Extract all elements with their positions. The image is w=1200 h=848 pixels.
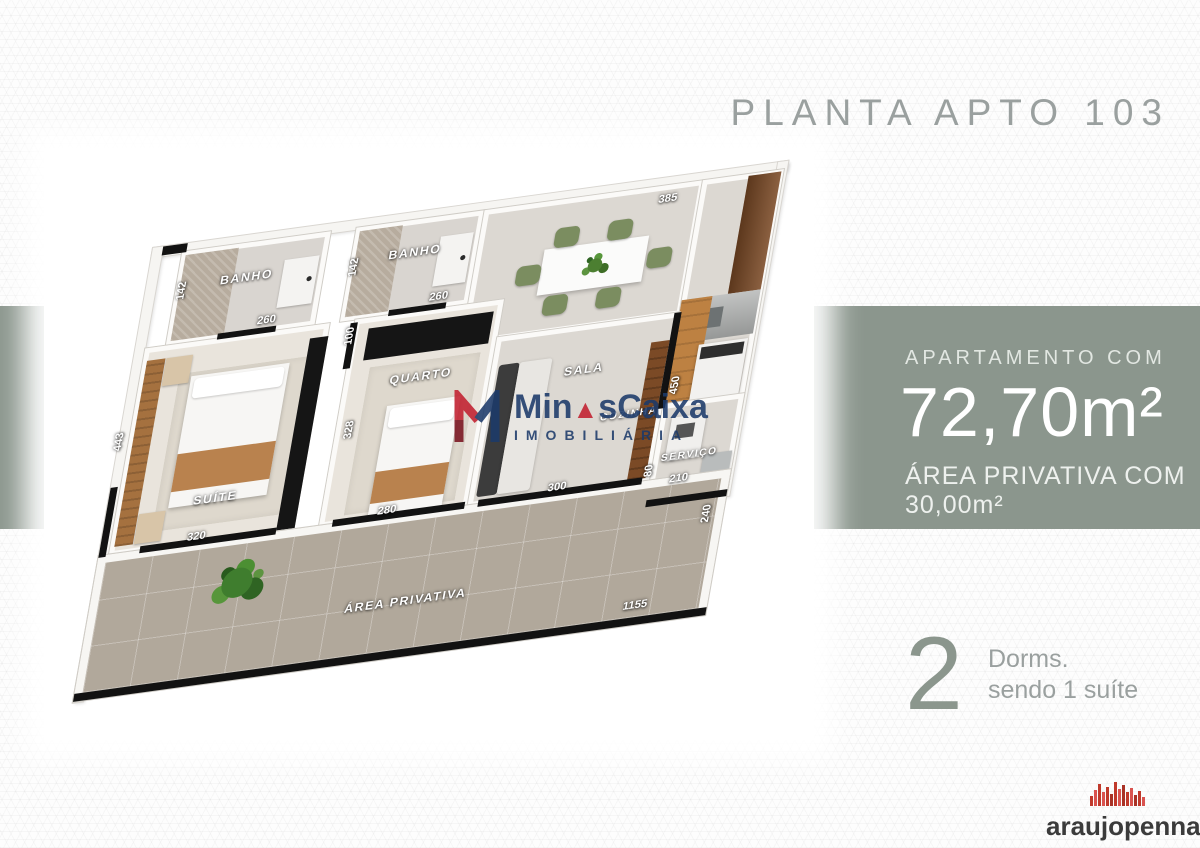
- bed-throw: [370, 462, 449, 504]
- bath-sink: [432, 232, 474, 286]
- private-area-text: ÁREA PRIVATIVA COM 30,00m²: [905, 462, 1200, 520]
- watermark-brand: Min▲sCaixa: [514, 390, 708, 424]
- bed-throw: [171, 441, 276, 492]
- dining-chair: [594, 286, 622, 309]
- brand-part: Min: [514, 388, 573, 426]
- bed-pillows: [387, 399, 456, 428]
- bath-sink: [276, 255, 319, 308]
- dining-chair: [645, 246, 673, 269]
- dorms-sublabel: sendo 1 suíte: [988, 676, 1138, 705]
- faucet: [460, 255, 466, 261]
- apartment-heading: APARTAMENTO COM: [905, 347, 1166, 370]
- stove-top: [699, 341, 744, 359]
- nightstand: [134, 511, 166, 545]
- dim-servico-depth: 80: [642, 464, 656, 478]
- araujopenna-text: araujopenna: [1046, 813, 1200, 839]
- brand-part: sCaixa: [598, 388, 708, 426]
- brand-triangle: ▲: [573, 394, 599, 424]
- minascaixa-m-icon: [452, 390, 502, 446]
- watermark: Min▲sCaixa IMOBILIÁRIA: [452, 390, 708, 446]
- skyline-icon: [1088, 780, 1158, 806]
- faucet: [306, 276, 312, 282]
- page-title: PLANTA APTO 103: [731, 92, 1170, 134]
- araujopenna-logo: araujopenna: [1046, 780, 1200, 839]
- watermark-subtitle: IMOBILIÁRIA: [514, 427, 708, 443]
- dining-chair: [541, 293, 569, 316]
- nightstand: [162, 355, 194, 387]
- dorms-label: Dorms.: [988, 645, 1069, 674]
- dorms-count: 2: [905, 622, 963, 726]
- apartment-area: 72,70m²: [900, 372, 1164, 452]
